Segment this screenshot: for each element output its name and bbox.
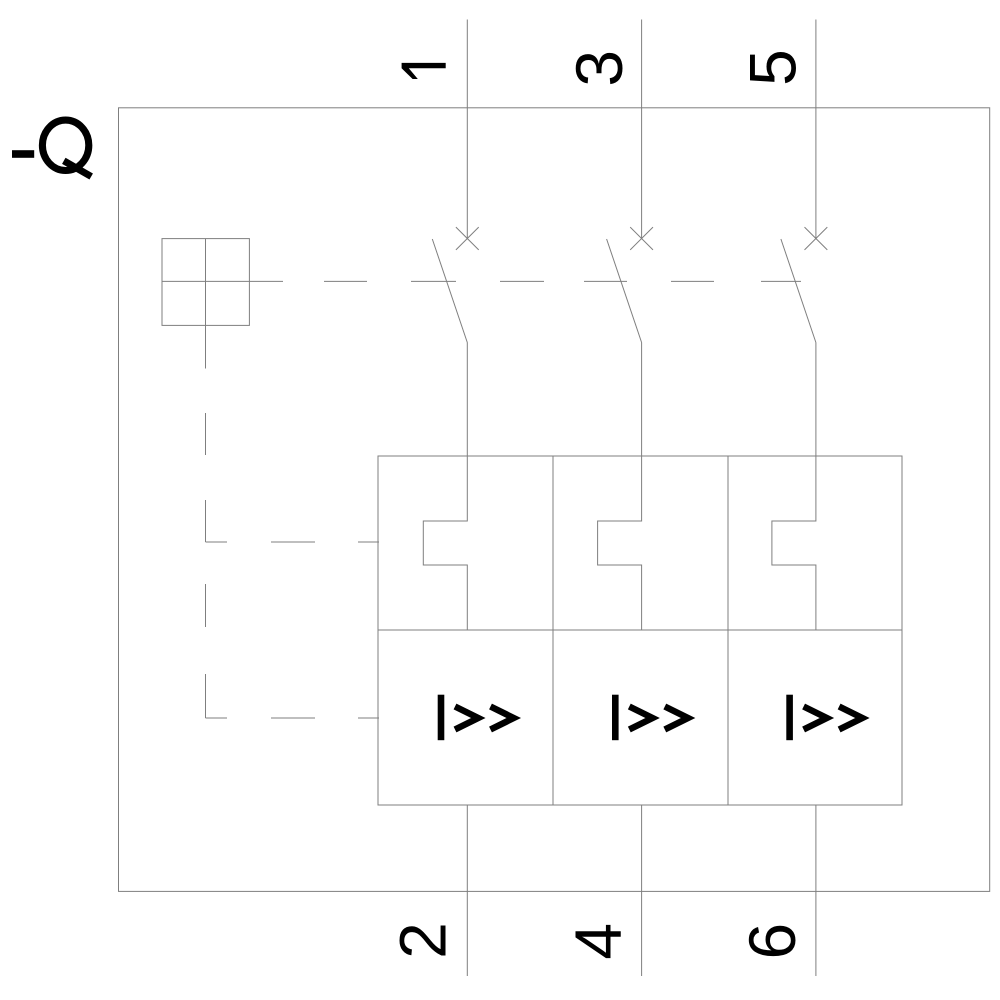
svg-text:5: 5 [736, 49, 810, 86]
svg-text:2: 2 [385, 922, 459, 959]
svg-text:3: 3 [562, 50, 636, 87]
svg-text:4: 4 [561, 923, 635, 960]
svg-text:6: 6 [735, 923, 809, 960]
